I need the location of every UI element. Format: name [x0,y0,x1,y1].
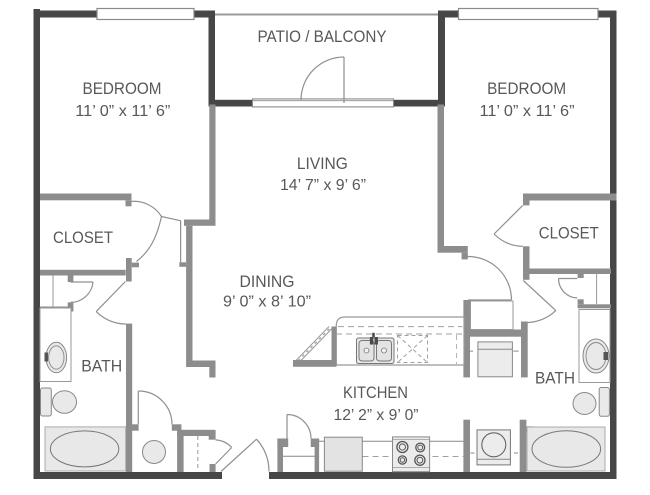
svg-text:DINING: DINING [240,273,295,291]
svg-text:BATH: BATH [81,358,122,376]
svg-text:12’ 2” x 9’ 0”: 12’ 2” x 9’ 0” [334,407,419,424]
svg-text:11’ 0” x 11’ 6”: 11’ 0” x 11’ 6” [480,103,575,120]
svg-text:CLOSET: CLOSET [539,225,599,243]
svg-text:PATIO / BALCONY: PATIO / BALCONY [258,28,387,46]
svg-text:BEDROOM: BEDROOM [83,80,162,98]
svg-text:14’ 7” x 9’ 6”: 14’ 7” x 9’ 6” [280,177,366,194]
svg-text:11’ 0” x 11’ 6”: 11’ 0” x 11’ 6” [75,103,170,120]
svg-text:LIVING: LIVING [297,155,348,173]
svg-text:BATH: BATH [535,370,575,388]
svg-text:CLOSET: CLOSET [53,229,113,247]
svg-text:KITCHEN: KITCHEN [343,384,408,402]
svg-text:9’ 0” x 8’ 10”: 9’ 0” x 8’ 10” [223,294,311,311]
svg-text:BEDROOM: BEDROOM [487,80,566,98]
